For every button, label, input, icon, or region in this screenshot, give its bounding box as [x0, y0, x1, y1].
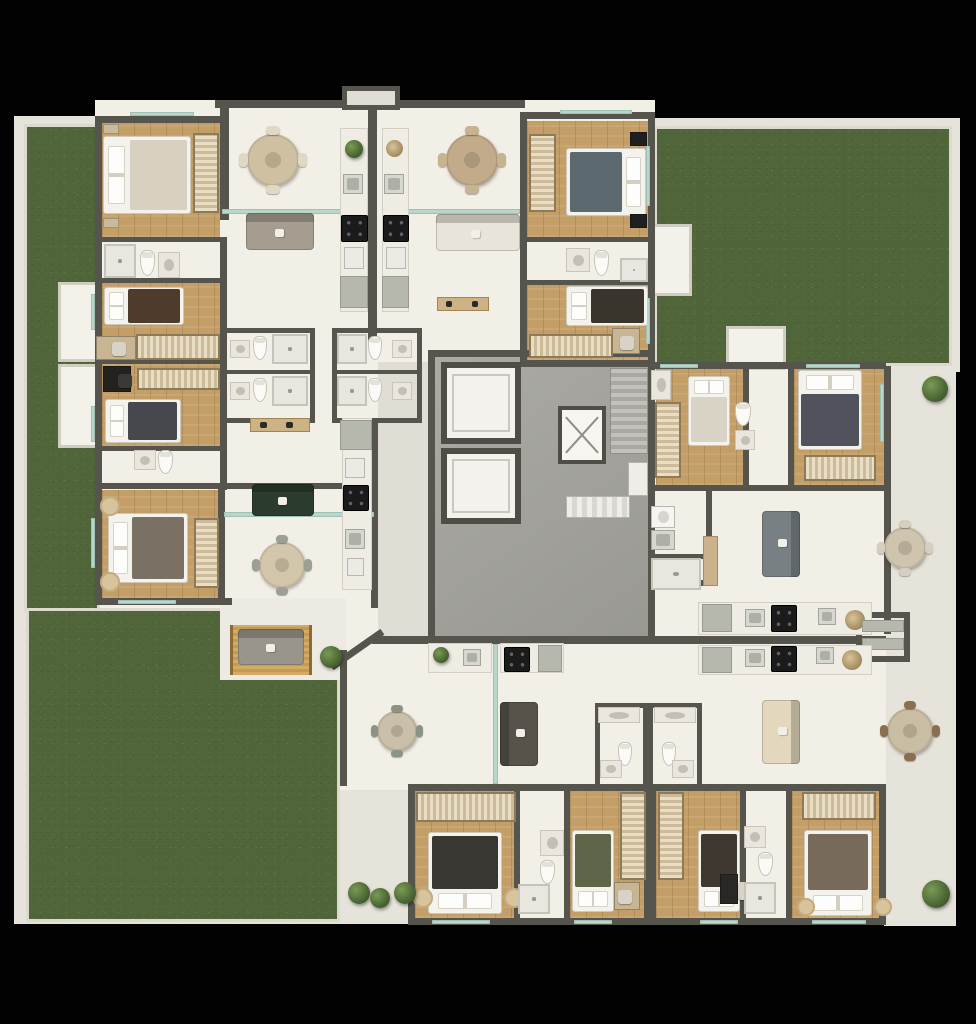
window-glass	[646, 146, 650, 206]
patio-top-right	[650, 224, 692, 296]
grass-top-right-yard	[654, 126, 952, 366]
cabinet	[340, 420, 372, 450]
round-rug	[100, 572, 120, 592]
bench	[103, 218, 119, 228]
sink	[463, 649, 481, 666]
dining-chair	[391, 750, 402, 757]
sofa-white	[436, 214, 520, 251]
sofa-dark	[500, 702, 538, 766]
bed-double	[108, 513, 188, 583]
stove	[341, 215, 368, 242]
decor	[842, 650, 862, 670]
sink	[345, 529, 365, 549]
bed-double	[428, 832, 502, 914]
vanity	[651, 370, 671, 400]
dining-chair	[899, 568, 911, 576]
nightstand	[103, 124, 119, 134]
dining-chair	[904, 753, 917, 761]
sideboard	[250, 418, 310, 432]
nightstand-black	[630, 214, 647, 228]
vanity	[744, 826, 766, 848]
sink	[343, 174, 363, 194]
bed-double	[566, 148, 646, 216]
wall	[95, 278, 222, 283]
wall	[643, 703, 653, 788]
wall	[520, 360, 655, 367]
desk-chair	[112, 342, 126, 356]
dining-table	[446, 134, 498, 186]
elevator-shaft	[441, 448, 521, 524]
stove	[771, 605, 797, 632]
decor	[386, 140, 403, 157]
vanity	[672, 760, 694, 778]
dining-chair	[877, 542, 885, 554]
dining-chair	[904, 701, 917, 709]
cabinet	[702, 647, 732, 673]
plant	[922, 376, 948, 402]
bush	[348, 882, 370, 904]
wall	[525, 237, 648, 242]
window-glass	[118, 600, 176, 604]
window-glass	[880, 384, 884, 442]
vanity	[566, 248, 590, 272]
coffee-station	[347, 558, 364, 576]
wall	[743, 368, 749, 485]
shower	[337, 334, 367, 364]
wall	[368, 100, 377, 343]
desk-chair	[620, 336, 634, 350]
dining-chair	[298, 153, 307, 168]
shower	[272, 376, 308, 406]
dining-chair	[497, 153, 506, 168]
stairs-landing	[628, 462, 648, 496]
bush	[394, 882, 416, 904]
plant	[922, 880, 950, 908]
elevator-shaft	[441, 362, 521, 444]
dining-chair	[391, 705, 402, 712]
wardrobe	[194, 518, 219, 588]
bed-single	[566, 286, 648, 326]
stairs-flight	[610, 368, 648, 454]
stove	[343, 485, 369, 511]
window-glass	[560, 110, 632, 114]
vanity	[230, 340, 250, 358]
dining-chair	[438, 153, 447, 168]
desk-chair	[618, 890, 632, 904]
dining-table	[247, 134, 299, 186]
bed-single	[104, 287, 184, 325]
hall-strip	[378, 362, 432, 638]
window-glass	[700, 920, 738, 924]
desk-chair	[118, 374, 132, 388]
shower	[744, 882, 776, 914]
wall	[884, 366, 891, 634]
cabinet	[382, 276, 409, 308]
shower	[272, 334, 308, 364]
wall	[340, 650, 347, 786]
dining-chair	[252, 559, 260, 572]
wardrobe	[655, 402, 681, 478]
shower	[337, 376, 367, 406]
window-glass	[660, 364, 698, 368]
wall	[786, 784, 792, 925]
plant	[320, 646, 342, 668]
shower	[104, 244, 136, 278]
window-glass	[91, 294, 95, 330]
oven	[386, 247, 406, 269]
wall	[220, 100, 229, 220]
wall	[564, 784, 570, 925]
dining-table	[884, 527, 926, 569]
window-glass	[130, 112, 194, 116]
wall	[102, 237, 224, 242]
wardrobe	[136, 334, 220, 360]
wall	[95, 446, 222, 451]
bed-single	[688, 376, 730, 446]
washer	[651, 506, 675, 528]
wall	[310, 328, 315, 423]
cabinet	[702, 604, 732, 632]
laundry-sink	[651, 530, 675, 550]
bed-double	[103, 136, 191, 214]
wardrobe	[193, 133, 219, 213]
sofa-green	[252, 484, 314, 516]
vanity	[654, 707, 696, 723]
elevator-cab	[558, 406, 606, 464]
dining-chair	[371, 725, 378, 736]
stove	[771, 646, 797, 672]
wall	[697, 703, 702, 788]
dining-table	[887, 708, 933, 754]
bed-double	[798, 370, 862, 450]
shaft-top-inner	[347, 91, 395, 105]
sink	[745, 609, 765, 627]
vanity	[134, 450, 156, 470]
vanity	[598, 707, 640, 723]
window-glass	[806, 364, 860, 368]
wall	[788, 368, 794, 485]
wardrobe	[620, 792, 646, 880]
dining-chair	[239, 153, 248, 168]
vanity	[392, 382, 412, 400]
bed-single	[105, 399, 181, 443]
cabinet	[340, 276, 368, 308]
wardrobe	[529, 134, 556, 212]
oven	[344, 247, 364, 269]
plant	[433, 647, 449, 663]
vanity	[540, 830, 564, 856]
fridge	[345, 458, 365, 478]
dining-table	[259, 542, 305, 588]
cabinet	[538, 645, 562, 672]
shower	[651, 558, 701, 590]
sink	[818, 608, 836, 625]
utility-shelf	[862, 620, 904, 632]
bed-single	[572, 830, 614, 912]
sofa-grey	[762, 511, 800, 577]
wardrobe	[802, 792, 876, 820]
sink	[745, 649, 765, 667]
wardrobe	[529, 334, 613, 358]
window-glass	[812, 920, 866, 924]
window-glass	[91, 518, 95, 568]
wall	[650, 485, 886, 491]
desk	[720, 874, 738, 904]
dining-chair	[276, 587, 289, 595]
wardrobe	[658, 792, 684, 880]
stove	[504, 647, 530, 672]
sink	[384, 174, 404, 194]
sideboard	[437, 297, 489, 311]
vanity	[600, 760, 622, 778]
sofa	[246, 213, 314, 250]
dining-chair	[276, 535, 289, 543]
nightstand-black	[630, 132, 647, 146]
dining-chair	[465, 185, 480, 194]
vanity	[158, 252, 180, 278]
wall	[95, 116, 227, 123]
shelf	[703, 536, 718, 586]
dining-chair	[416, 725, 423, 736]
dining-chair	[925, 542, 933, 554]
dining-chair	[304, 559, 312, 572]
wardrobe	[137, 368, 220, 390]
vanity	[230, 382, 250, 400]
window-glass	[432, 920, 490, 924]
round-rug	[797, 898, 815, 916]
railing-glass	[493, 644, 498, 784]
shower	[518, 884, 550, 914]
dining-chair	[465, 126, 480, 135]
bush	[370, 888, 390, 908]
vanity	[735, 430, 755, 450]
wardrobe	[804, 455, 876, 481]
wall	[332, 370, 422, 374]
dining-chair	[266, 185, 281, 194]
window-glass	[574, 920, 612, 924]
plant	[345, 140, 363, 158]
round-rug	[874, 898, 892, 916]
round-rug	[100, 496, 120, 516]
sink	[816, 647, 834, 664]
dining-chair	[266, 126, 281, 135]
wardrobe	[416, 792, 516, 822]
window-glass	[91, 406, 95, 442]
stairs-flight-lower	[566, 496, 630, 518]
wall	[904, 612, 910, 662]
wall	[417, 328, 422, 423]
wall	[227, 328, 315, 333]
dining-chair	[932, 725, 940, 738]
wall	[428, 356, 435, 642]
dining-table	[377, 711, 417, 751]
dining-chair	[899, 520, 911, 528]
sofa-cream	[762, 700, 800, 764]
shower	[620, 258, 648, 282]
wall	[227, 370, 315, 374]
wall	[218, 487, 225, 605]
floor-plan	[0, 0, 976, 1024]
round-rug	[413, 888, 433, 908]
outdoor-sofa	[238, 629, 304, 665]
stove	[383, 215, 409, 242]
vanity	[392, 340, 412, 358]
wall	[332, 328, 422, 333]
dining-chair	[880, 725, 888, 738]
